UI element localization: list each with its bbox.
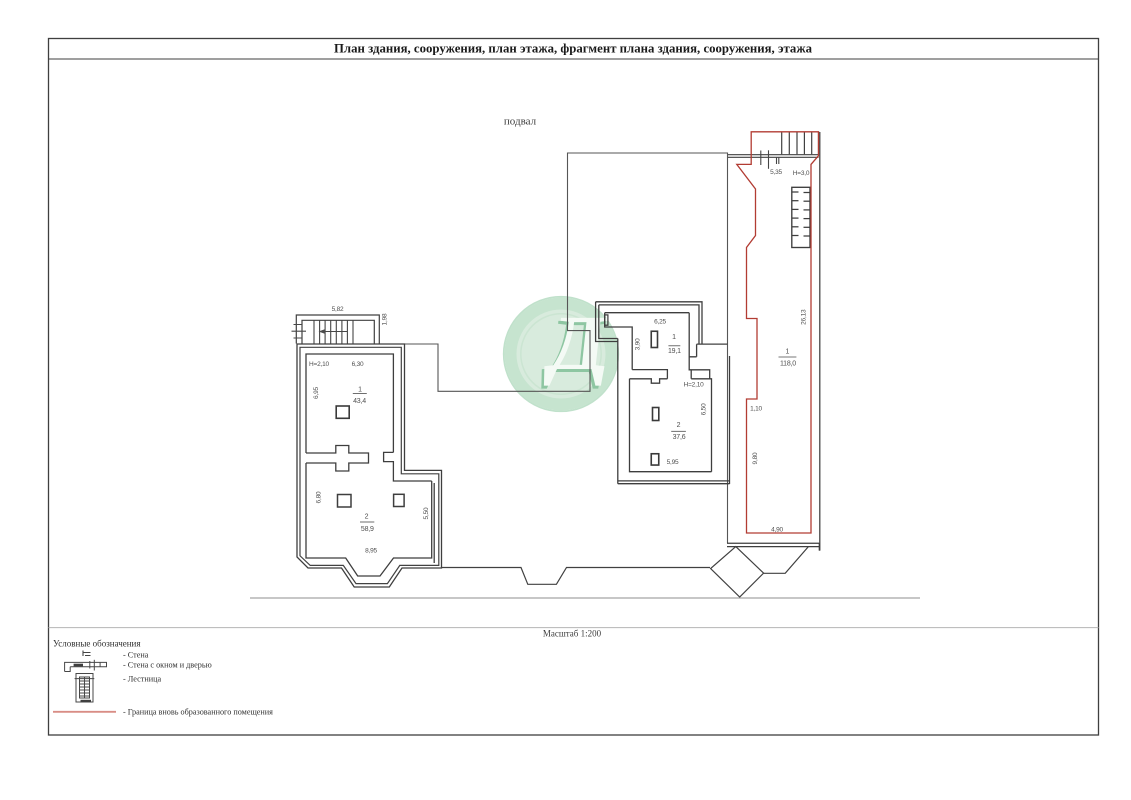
svg-text:5,35: 5,35 (770, 169, 782, 176)
svg-text:4,90: 4,90 (771, 527, 783, 534)
svg-text:- Стена с окном и дверью: - Стена с окном и дверью (123, 661, 212, 670)
svg-text:- Стена: - Стена (123, 650, 149, 659)
svg-text:8,95: 8,95 (365, 547, 377, 554)
svg-text:H=2,10: H=2,10 (684, 381, 705, 388)
svg-text:9,80: 9,80 (752, 452, 759, 464)
svg-text:58,9: 58,9 (361, 526, 374, 533)
svg-text:6,25: 6,25 (654, 319, 666, 326)
svg-text:5,50: 5,50 (423, 507, 430, 519)
svg-text:Условные обозначения: Условные обозначения (53, 639, 141, 649)
svg-text:6,80: 6,80 (316, 491, 323, 503)
svg-text:1: 1 (786, 348, 790, 355)
svg-text:5,95: 5,95 (667, 459, 679, 466)
svg-text:1,10: 1,10 (750, 406, 762, 413)
svg-text:План здания, сооружения, план: План здания, сооружения, план этажа, фра… (334, 42, 813, 56)
svg-text:6,95: 6,95 (313, 386, 320, 398)
svg-text:6,50: 6,50 (701, 403, 708, 415)
svg-text:118,0: 118,0 (780, 360, 796, 367)
svg-text:H=2,10: H=2,10 (309, 361, 330, 368)
svg-text:H=3,0: H=3,0 (793, 170, 810, 177)
svg-text:- Граница вновь образованного: - Граница вновь образованного помещения (123, 707, 273, 716)
svg-text:1: 1 (358, 386, 362, 393)
svg-text:43,4: 43,4 (353, 398, 366, 405)
svg-text:- Лестница: - Лестница (123, 674, 161, 683)
svg-text:6,30: 6,30 (352, 361, 364, 368)
svg-text:2: 2 (365, 514, 369, 521)
svg-text:Д: Д (542, 300, 613, 386)
svg-text:1: 1 (672, 334, 676, 341)
svg-text:26,13: 26,13 (801, 309, 808, 325)
svg-text:37,6: 37,6 (673, 434, 686, 441)
svg-text:Масштаб 1:200: Масштаб 1:200 (543, 629, 602, 639)
svg-text:1,98: 1,98 (382, 313, 389, 325)
svg-text:5,82: 5,82 (332, 306, 344, 313)
svg-text:19,1: 19,1 (668, 348, 681, 355)
svg-text:3,90: 3,90 (634, 338, 641, 350)
svg-text:подвал: подвал (504, 116, 537, 128)
svg-text:2: 2 (677, 422, 681, 429)
